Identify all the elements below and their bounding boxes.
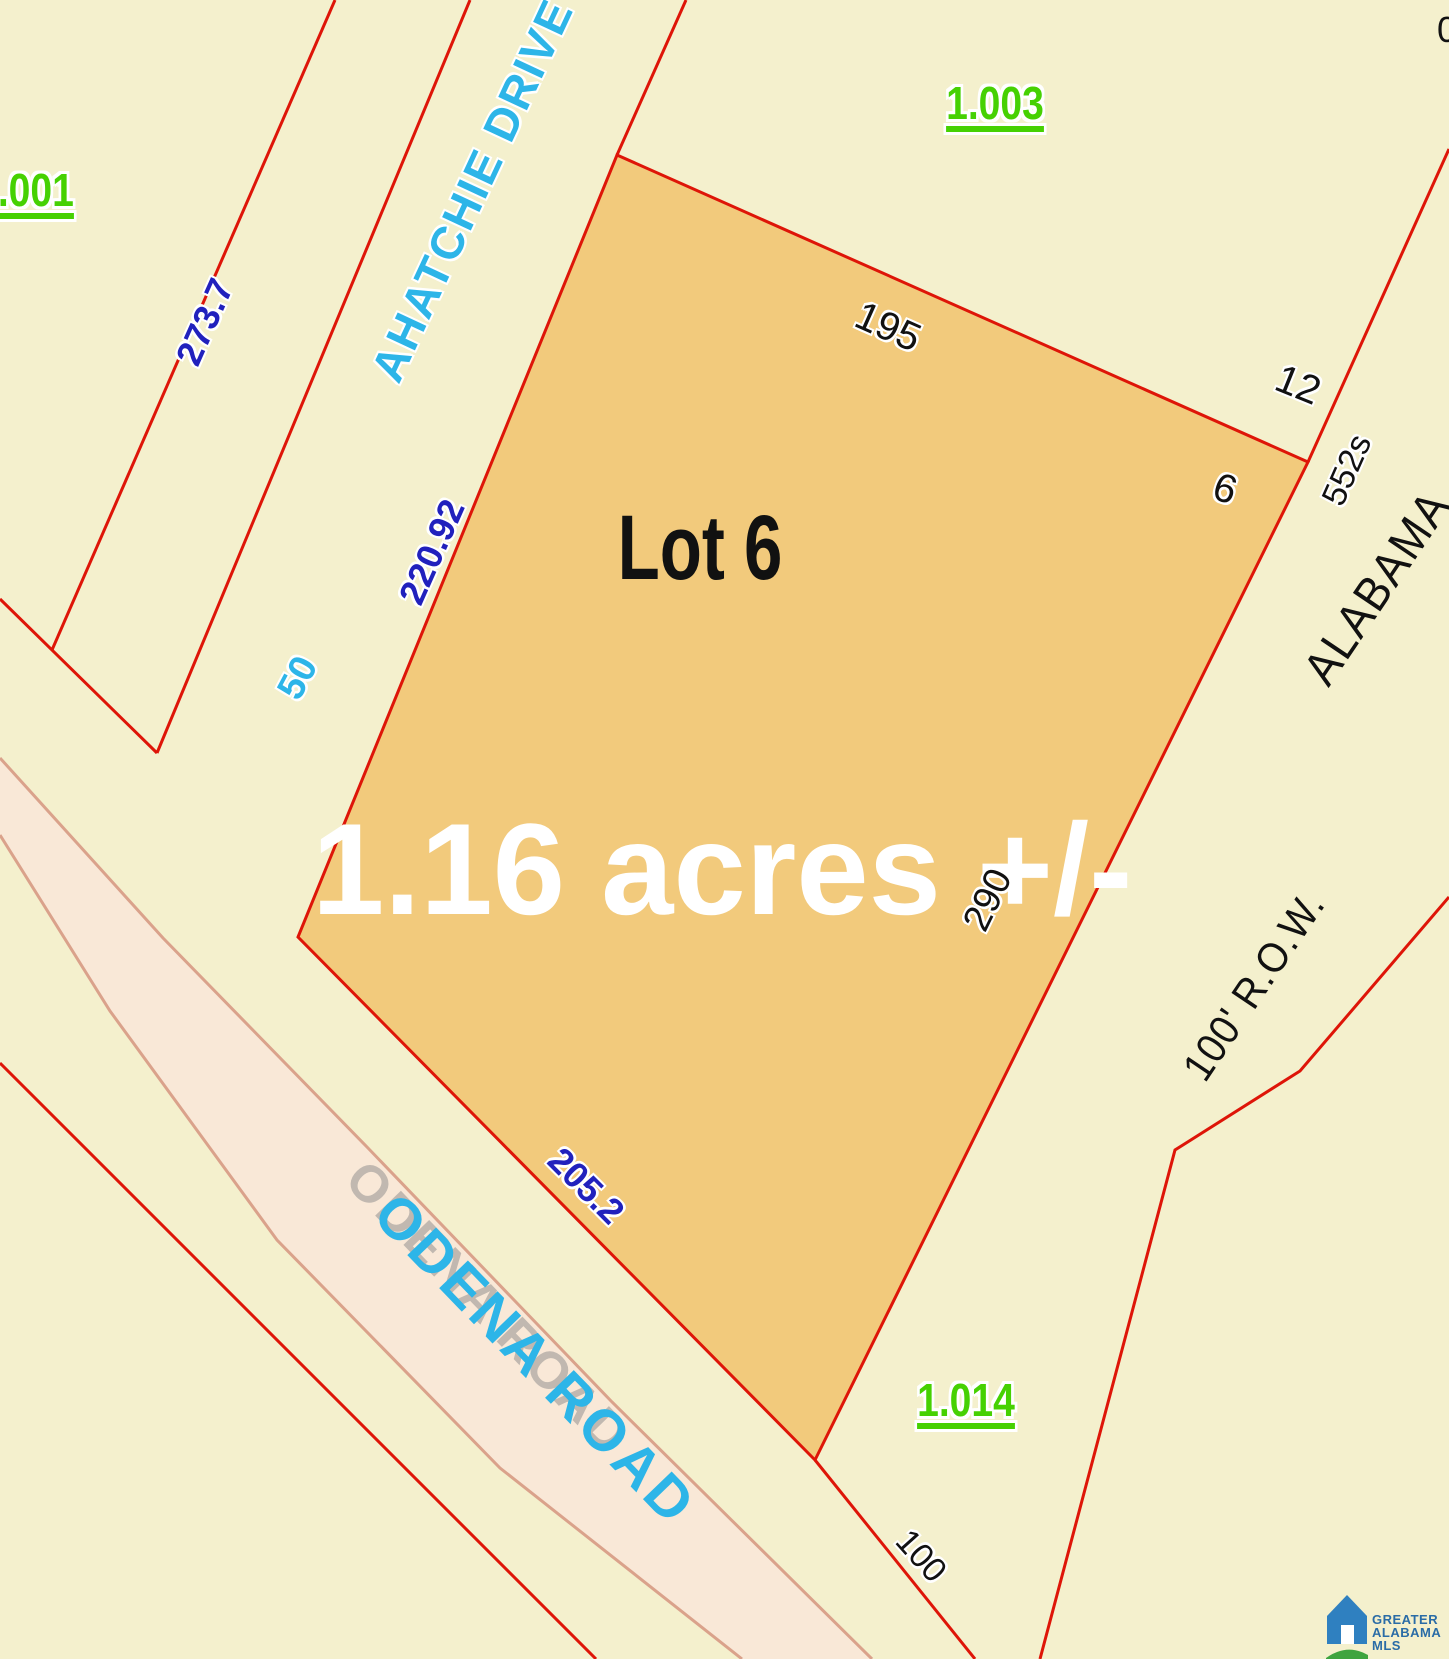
lot-title: Lot 6 xyxy=(618,502,783,594)
house-hill xyxy=(1326,1650,1368,1659)
parcel-label-1003: 1.003 xyxy=(946,80,1044,126)
parcel-map: 1.001 1.003 1.014 AHATCHIE DRIVE ODENA R… xyxy=(0,0,1449,1659)
logo-text-line3: MLS xyxy=(1372,1639,1401,1652)
edge-partial-char: 0 xyxy=(1437,12,1449,48)
house-door xyxy=(1341,1625,1354,1644)
parcel-label-1001: 1.001 xyxy=(0,167,74,213)
parcel-label-1014: 1.014 xyxy=(917,1377,1015,1423)
mls-house-icon xyxy=(1326,1594,1370,1659)
lot-area: 1.16 acres +/- xyxy=(312,804,1132,934)
